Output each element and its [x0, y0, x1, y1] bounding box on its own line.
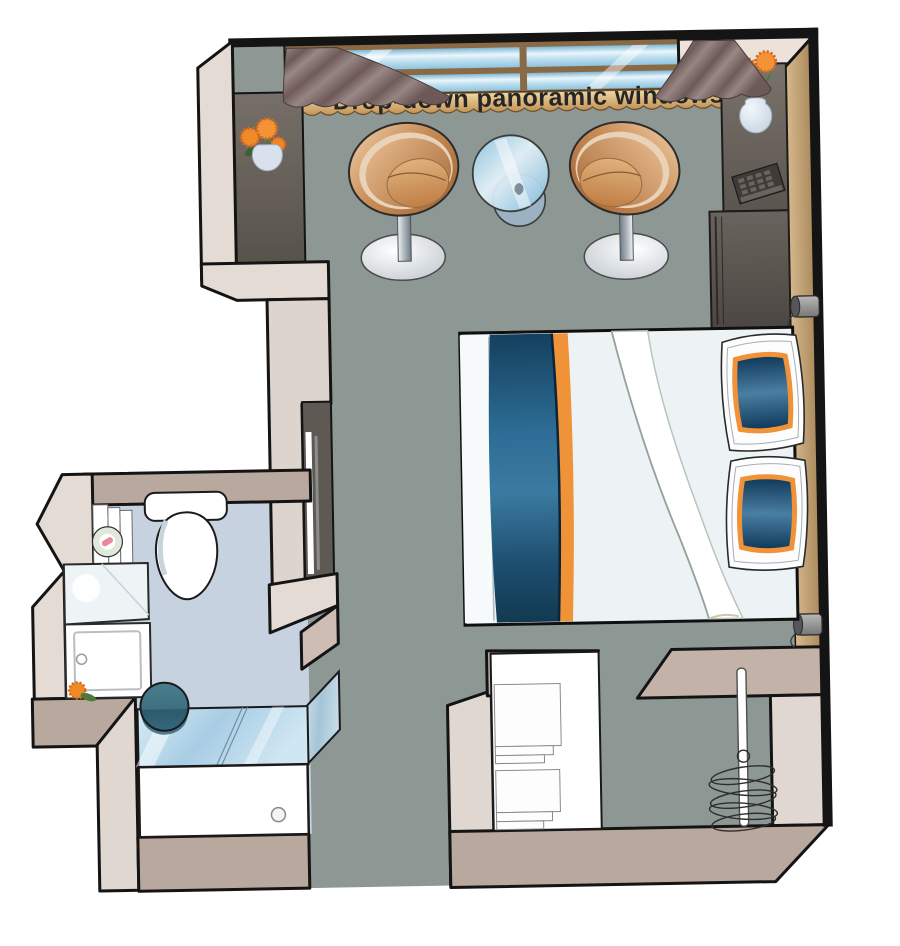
teal-stool: [140, 682, 189, 735]
bathroom-left-wall: [36, 474, 94, 571]
double-bed: [460, 327, 812, 625]
floor-plan: Drop-down panoramic windows: [0, 0, 900, 946]
shower-tray: [139, 764, 309, 837]
bottom-wall: [450, 825, 830, 888]
wall-top-left: [197, 41, 236, 280]
shelf-stack-2: [496, 770, 561, 830]
plan-tilt-group: Drop-down panoramic windows: [20, 28, 833, 895]
shelf-stack-1: [494, 683, 561, 763]
wall-panel-left: [233, 92, 305, 274]
bed-runner: [487, 333, 562, 622]
toilet-roll-holder: [92, 526, 123, 557]
bathroom-bottom-wall: [138, 834, 310, 891]
closet-interior: [491, 652, 602, 831]
pillow-bottom: [726, 456, 809, 571]
vanity-alcove-wall: [32, 572, 66, 700]
pillow-top: [718, 332, 807, 453]
wardrobe-right-wall: [770, 695, 828, 826]
wall-step-left: [201, 262, 329, 301]
floor-plan-page: Drop-down panoramic windows: [0, 0, 900, 946]
vanity-counter: [64, 563, 149, 625]
